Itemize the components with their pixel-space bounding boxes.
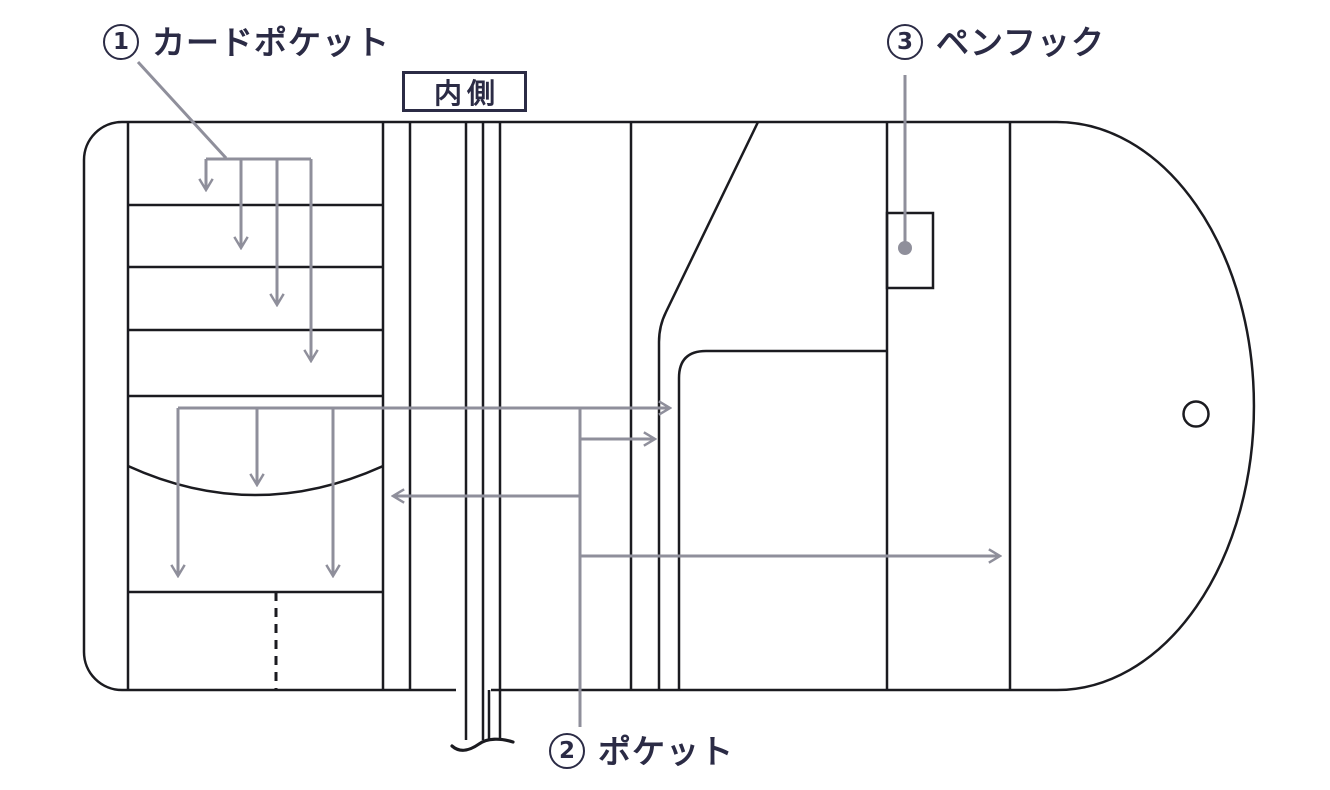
- diagonal-flap-line: [659, 122, 758, 690]
- panel-divider-lines: [128, 122, 1010, 690]
- inner-side-box: 内側: [402, 71, 527, 112]
- inner-side-text: 内側: [434, 72, 500, 112]
- diagram-linework: [0, 0, 1330, 790]
- center-strap: [452, 122, 513, 750]
- label-pen-hook: 3 ペンフック: [887, 24, 1105, 60]
- case-outline: [84, 122, 1254, 690]
- label-card-pocket: 1 カードポケット: [103, 24, 390, 60]
- circled-number-3: 3: [887, 24, 923, 60]
- label-card-pocket-text: カードポケット: [152, 26, 390, 59]
- wallet-interior-diagram: 1 カードポケット 3 ペンフック 2 ポケット 内側: [0, 0, 1330, 790]
- annotation-pen-hook-pointer: [898, 75, 912, 255]
- inner-pocket-outline: [679, 351, 887, 690]
- circled-number-2: 2: [549, 733, 585, 769]
- label-pocket: 2 ポケット: [549, 733, 734, 769]
- annotation-pocket-arrows: [178, 408, 1000, 727]
- label-pen-hook-text: ペンフック: [936, 26, 1105, 59]
- strap-torn-end: [452, 739, 513, 750]
- circled-number-1: 1: [103, 24, 139, 60]
- annotation-card-pocket-arrows: [138, 62, 311, 361]
- pointer-dot: [898, 241, 912, 255]
- card-slot-lines: [128, 205, 383, 396]
- snap-button-circle: [1184, 402, 1209, 427]
- label-pocket-text: ポケット: [598, 735, 734, 768]
